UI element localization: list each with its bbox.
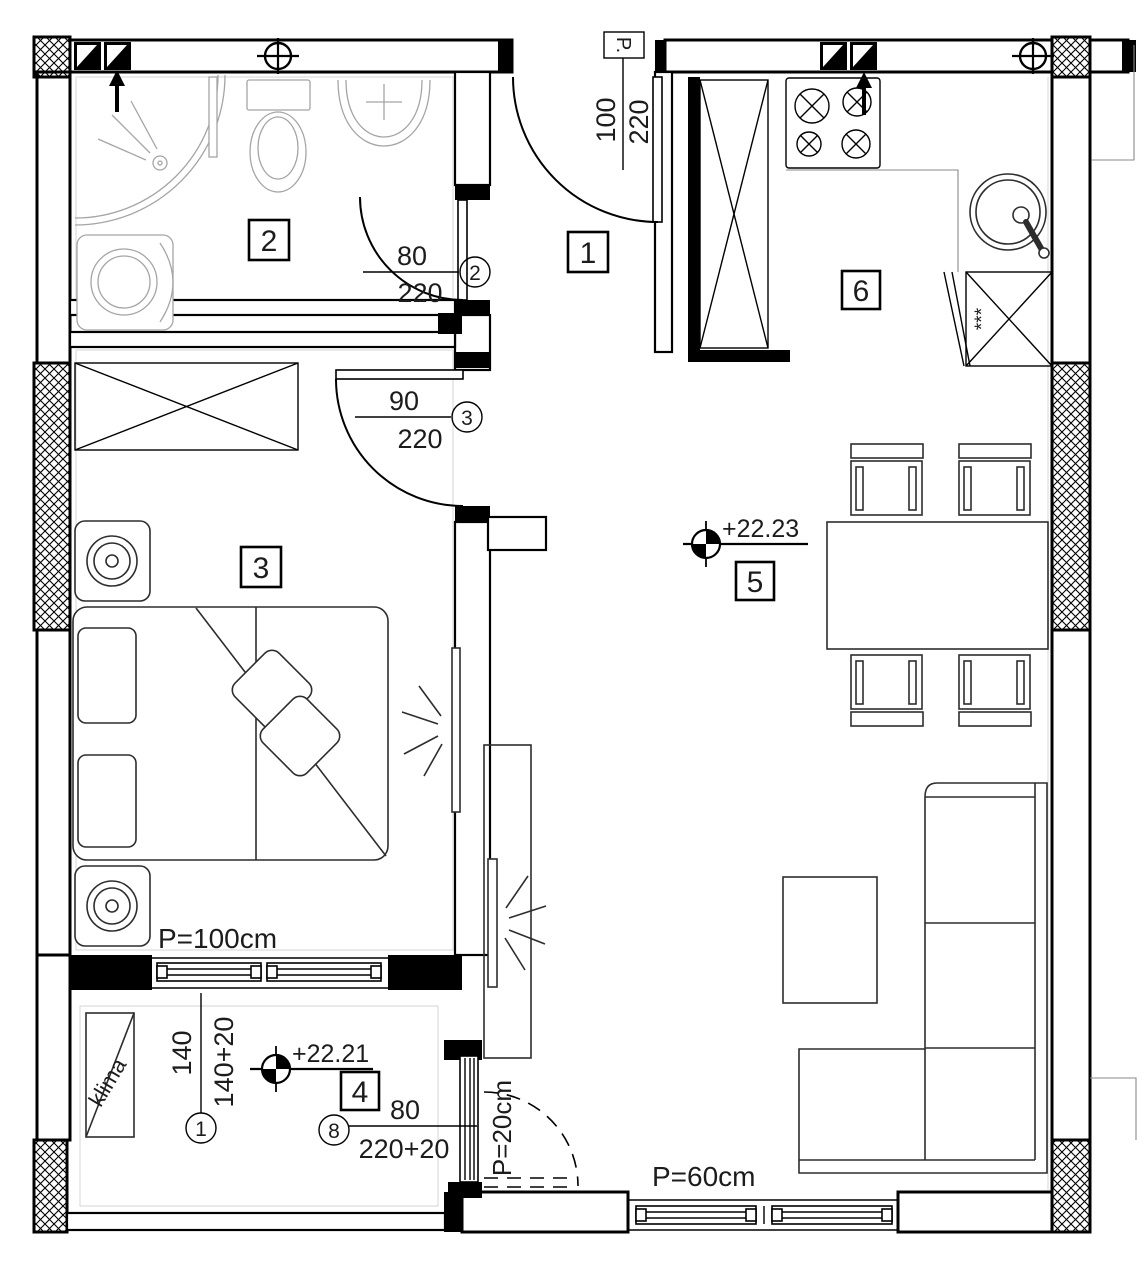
coffee-table-icon — [783, 877, 877, 1003]
svg-text:4: 4 — [352, 1076, 369, 1109]
svg-text:5: 5 — [747, 566, 764, 599]
window-height-label: 140+20 — [209, 1017, 239, 1108]
door-height-label: 220 — [397, 278, 442, 308]
wall-stub — [488, 517, 546, 550]
level-value: +22.21 — [292, 1040, 369, 1068]
room-label-6: 6 — [842, 271, 880, 309]
freezer-stars-label: *** — [972, 307, 993, 330]
door-height-label: 220 — [397, 424, 442, 454]
door-mark: 8 — [328, 1120, 340, 1143]
bed-icon — [73, 607, 388, 860]
svg-text:1: 1 — [580, 237, 597, 270]
parapet-note: P=20cm — [487, 1080, 517, 1176]
living-tv-icon — [488, 859, 497, 987]
door-width-label: 90 — [389, 386, 419, 416]
dining-table-icon — [827, 522, 1048, 649]
svg-text:3: 3 — [253, 552, 270, 585]
door-height-label: 220 — [624, 99, 654, 144]
washing-machine-icon — [77, 235, 173, 330]
level-value: +22.23 — [722, 515, 799, 543]
nightstand-icon — [75, 866, 150, 946]
nightstand-icon — [75, 521, 150, 601]
door-mark: 3 — [461, 407, 473, 430]
balcony-balustrade — [67, 1213, 445, 1230]
dining-chair-icon — [959, 444, 1031, 515]
svg-text:2: 2 — [261, 225, 278, 258]
parapet-note: P=100cm — [158, 923, 277, 954]
window-width-label: 140 — [167, 1030, 197, 1075]
door-height-label: 220+20 — [359, 1134, 450, 1164]
svg-text:6: 6 — [853, 275, 870, 308]
dining-chair-icon — [851, 655, 923, 726]
door-mark: 2 — [469, 262, 481, 285]
insulation-hatch — [34, 37, 70, 77]
window-mark: 1 — [195, 1118, 207, 1141]
room-label-2: 2 — [249, 220, 289, 260]
room-label-3: 3 — [241, 547, 281, 587]
door-width-label: 100 — [591, 97, 621, 142]
floor-plan-page: *** — [0, 0, 1144, 1273]
room-label-5: 5 — [736, 562, 774, 600]
floor-plan-drawing: *** — [0, 0, 1144, 1273]
door-width-label: 80 — [397, 241, 427, 271]
dining-chair-icon — [851, 444, 923, 515]
room-label-4: 4 — [341, 1072, 379, 1110]
dining-chair-icon — [959, 655, 1031, 726]
room-label-1: 1 — [568, 232, 608, 272]
door-width-label: 80 — [390, 1095, 420, 1125]
door-tag-label: P. — [612, 37, 634, 53]
parapet-note: P=60cm — [652, 1161, 756, 1192]
